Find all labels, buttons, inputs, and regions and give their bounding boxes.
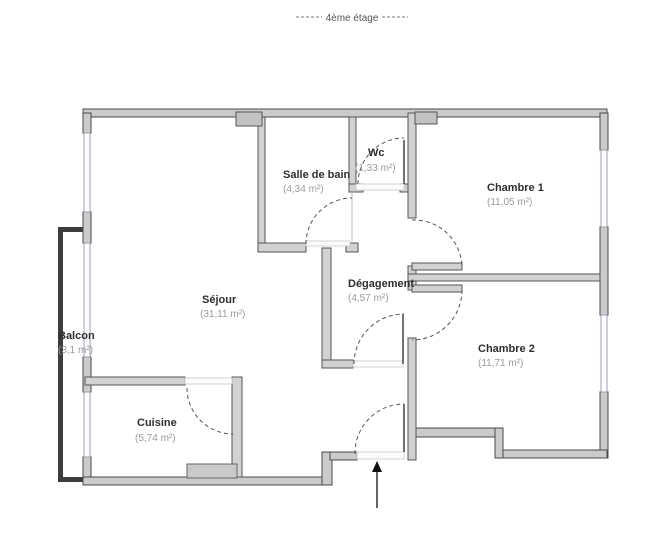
window-right-bottom (601, 315, 607, 392)
duct-block-left (236, 112, 262, 126)
wall-bottom-right (503, 450, 607, 458)
cuisine-area: (5,74 m²) (135, 433, 176, 444)
room-label-degagement: Dégagement (4,57 m²) (348, 278, 414, 304)
salle-de-bain-name: Salle de bain (283, 169, 351, 181)
wall-left-2 (83, 212, 91, 243)
window-right-top (601, 150, 607, 227)
window-left-top (84, 133, 90, 212)
balcony-bottom-line (58, 477, 85, 482)
wall-left-1 (83, 113, 91, 133)
window-left-bottom (84, 392, 90, 457)
cuisine-name: Cuisine (137, 417, 177, 429)
cuisine-door-arc (187, 388, 233, 434)
wall-chambre1-chambre2 (408, 274, 600, 281)
room-label-cuisine: Cuisine (5,74 m²) (135, 417, 177, 444)
room-label-salle-de-bain: Salle de bain (4,34 m²) (283, 169, 351, 195)
cuisine-door-opening (185, 378, 232, 384)
room-labels: Salle de bain (4,34 m²) Wc (1,33 m²) Cha… (58, 147, 544, 444)
entry-arrow (372, 461, 382, 508)
sejour-door-arc (354, 314, 404, 364)
duct-block-right (415, 112, 437, 124)
floor-title-group: 4ème étage (296, 13, 408, 24)
balcony-top-line (58, 227, 85, 232)
wall-sejour-degagement (322, 248, 331, 363)
room-label-chambre2: Chambre 2 (11,71 m²) (478, 343, 535, 369)
chambre2-door-leaf (412, 285, 462, 292)
room-label-wc: Wc (1,33 m²) (355, 147, 396, 174)
room-label-sejour: Séjour (31,11 m²) (200, 294, 245, 320)
entry-door-arc (355, 404, 404, 454)
wc-door-arc (358, 138, 404, 184)
sdb-door-arc (306, 198, 352, 244)
wall-degagement-bottom-stub (322, 360, 353, 368)
balcon-area: (3,1 m²) (58, 345, 93, 356)
entry-arrow-head (372, 461, 382, 472)
chambre2-door-arc (412, 290, 462, 340)
balcon-name: Balcon (58, 330, 95, 342)
sejour-area: (31,11 m²) (200, 309, 245, 320)
wall-cuisine-right (232, 377, 242, 477)
salle-de-bain-area: (4,34 m²) (283, 184, 324, 195)
sejour-door-opening (353, 361, 403, 367)
chambre2-area: (11,71 m²) (478, 358, 523, 369)
wall-sejour-sdb (258, 117, 265, 252)
wall-right-3 (600, 392, 608, 458)
entry-door-opening (357, 452, 404, 459)
sdb-door-opening (306, 241, 350, 246)
chambre1-door-arc (412, 220, 462, 268)
degagement-name: Dégagement (348, 278, 414, 290)
floor-plan: 4ème étage (0, 0, 662, 544)
chambre1-area: (11,05 m²) (487, 197, 532, 208)
wall-top (83, 109, 607, 117)
wall-degagement-chambre2 (408, 338, 416, 460)
wall-right-1 (600, 113, 608, 150)
wall-bottom-mid (330, 452, 357, 460)
floor-title: 4ème étage (326, 13, 379, 24)
wall-left-3 (83, 357, 91, 392)
room-label-chambre1: Chambre 1 (11,05 m²) (487, 182, 544, 208)
wall-chambre2-bottom (416, 428, 503, 437)
chambre2-name: Chambre 2 (478, 343, 535, 355)
sejour-name: Séjour (202, 294, 237, 306)
wc-name: Wc (368, 147, 385, 159)
wall-sdb-bottom (258, 243, 306, 252)
kitchen-counter-block (187, 464, 237, 478)
wc-door-opening (356, 184, 404, 190)
wc-area: (1,33 m²) (355, 163, 396, 174)
wall-wc-chambre1 (408, 113, 416, 218)
wall-cuisine-top (85, 377, 185, 385)
floor-plan-svg: 4ème étage (0, 0, 662, 544)
door-openings (185, 184, 404, 459)
chambre1-door-leaf (412, 263, 462, 270)
chambre1-name: Chambre 1 (487, 182, 544, 194)
degagement-area: (4,57 m²) (348, 293, 389, 304)
wall-right-2 (600, 227, 608, 315)
wall-bottom-step2 (495, 428, 503, 458)
